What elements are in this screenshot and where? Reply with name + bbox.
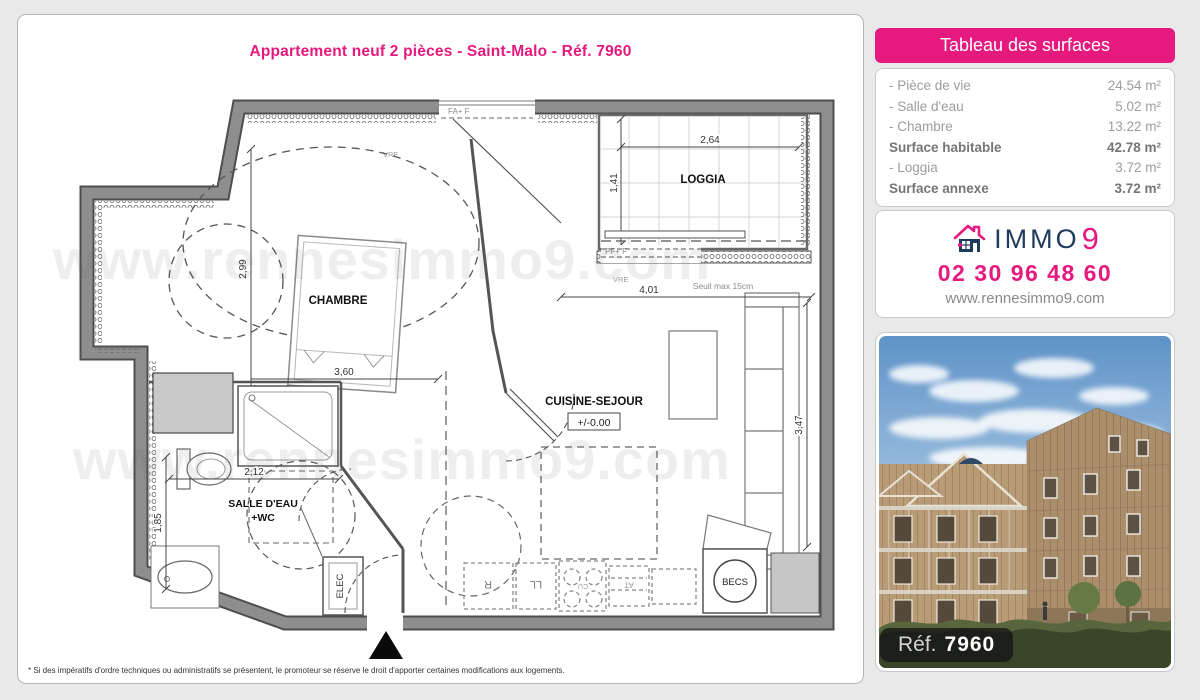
surface-row-annexe: Surface annexe 3.72 m² [889,179,1161,200]
vre-label-top: VRE [383,150,398,159]
surface-row-habitable: Surface habitable 42.78 m² [889,138,1161,159]
dim-sejour-height: 3,47 [794,415,805,435]
surface-label: - Pièce de vie [889,76,971,97]
surface-row-loggia: - Loggia 3.72 m² [889,158,1161,179]
duct-block [771,553,819,613]
room-label-wc: +WC [251,512,275,524]
dim-sde-height: 1,85 [153,513,164,533]
agency-phone: 02 30 96 48 60 [938,260,1112,287]
person [1043,602,1048,621]
surface-value: 42.78 m² [1107,138,1161,159]
ref-badge: Réf.7960 [880,628,1013,662]
dim-sejour-width: 4,01 [639,285,659,296]
floorplan-panel: Appartement neuf 2 pièces - Saint-Malo -… [17,14,864,684]
brand-9: 9 [1082,221,1099,257]
surface-value: 3.72 m² [1115,158,1161,179]
surface-value: 5.02 m² [1115,97,1161,118]
dim-chambre-width: 3,60 [334,367,354,378]
ref-value: 7960 [945,633,996,656]
building-left [879,454,1027,636]
level-label: +/-0.00 [578,417,611,429]
loggia: LOGGIA 2,64 1,41 PF+ F VRE [597,115,811,284]
surface-row-salle-deau: - Salle d'eau 5.02 m² [889,97,1161,118]
surface-row-chambre: - Chambre 13.22 m² [889,117,1161,138]
floorplan-drawing: FA+ F VRE LOGGIA 2,64 1,41 [31,76,851,661]
surfaces-table: - Pièce de vie 24.54 m² - Salle d'eau 5.… [875,68,1175,207]
surface-label: Surface annexe [889,179,989,200]
surface-label: Surface habitable [889,138,1002,159]
room-label-salle-deau: SALLE D'EAU [228,498,298,510]
right-column: Tableau des surfaces - Pièce de vie 24.5… [875,0,1175,700]
washer-label: LL [530,578,542,590]
vent-shaft [153,373,233,433]
surface-label: - Salle d'eau [889,97,964,118]
seuil-label: Seuil max 15cm [693,281,753,291]
surface-label: - Loggia [889,158,938,179]
dim-sde-width: 2,12 [244,467,264,478]
sink [151,546,219,608]
room-label-cuisine: CUISINE-SEJOUR [545,396,643,408]
immo9-house-icon [951,221,989,257]
shower [238,386,338,466]
agency-website: www.rennesimmo9.com [945,290,1104,307]
surface-label: - Chambre [889,117,953,138]
becs-label: BECS [722,577,748,588]
fa-f-label: FA+ F [448,107,470,116]
surface-row-piece-de-vie: - Pièce de vie 24.54 m² [889,76,1161,97]
agency-logo: IMMO 9 [951,221,1099,257]
surface-value: 3.72 m² [1114,179,1161,200]
property-photo-panel: Réf.7960 [875,332,1175,672]
pf-f-label: PF+ F [605,247,627,256]
dim-loggia-width: 2,64 [700,135,720,146]
dim-chambre-height: 2,99 [238,259,249,279]
fridge-label: R [484,578,492,590]
surface-value: 13.22 m² [1108,117,1161,138]
table [669,331,717,419]
brand-immo: IMMO [994,224,1080,255]
room-label-chambre: CHAMBRE [309,295,368,307]
at-label: AT [624,580,634,589]
page-title: Appartement neuf 2 pièces - Saint-Malo -… [18,43,863,61]
surfaces-header: Tableau des surfaces [875,28,1175,63]
elec-label: ELEC [335,573,346,598]
surface-value: 24.54 m² [1108,76,1161,97]
agency-card: IMMO 9 02 30 96 48 60 www.rennesimmo9.co… [875,210,1175,318]
property-photo: Réf.7960 [879,336,1171,668]
dim-loggia-depth: 1,41 [609,173,620,193]
hob-label: CU [578,582,588,589]
ref-label: Réf. [898,633,937,656]
becs-unit: BECS [703,515,771,613]
disclaimer-text: * Si des impératifs d'ordre techniques o… [28,666,565,675]
vre-label-loggia: VRE [613,275,628,284]
entry-arrow [369,631,403,659]
room-label-loggia: LOGGIA [680,174,725,186]
